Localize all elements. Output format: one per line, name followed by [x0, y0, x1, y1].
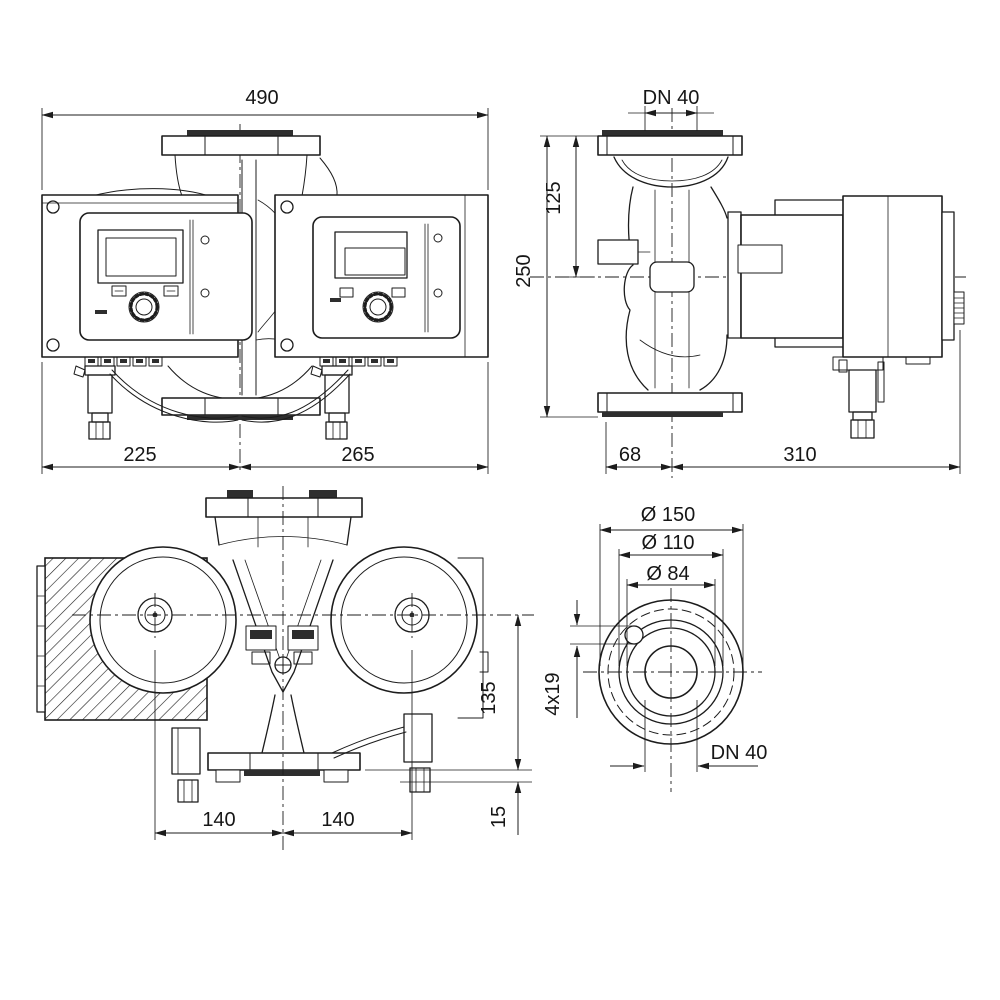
motor-window — [738, 245, 782, 273]
top-view: 140 140 135 15 — [37, 486, 534, 852]
front-bottom-flange — [162, 398, 320, 420]
dim-top-flange-foot: 15 — [488, 806, 510, 828]
flange-dimensions: Ø 150 Ø 110 Ø 84 DN 40 4x19 — [542, 504, 767, 772]
side-top-flange — [598, 130, 742, 155]
front-view: 490 225 265 — [42, 87, 488, 474]
center-fittings — [246, 626, 318, 673]
left-control-module — [80, 213, 252, 340]
motor-flange — [728, 212, 741, 338]
dim-flange-bolt-holes: 4x19 — [542, 672, 564, 715]
left-volute — [90, 547, 236, 693]
status-led — [330, 298, 341, 302]
sensor-box — [598, 240, 638, 264]
dim-front-left-width: 225 — [123, 444, 156, 466]
right-volute — [331, 547, 477, 693]
dim-top-left-pitch: 140 — [202, 809, 235, 831]
clamp-box — [650, 262, 694, 292]
technical-drawing: 490 225 265 — [0, 0, 1000, 1000]
dim-front-total-width: 490 — [245, 87, 278, 109]
top-gland-left — [172, 728, 200, 802]
bottom-flange-plan — [208, 753, 360, 782]
dim-side-axis-to-front: 68 — [619, 444, 641, 466]
pump-dimension-drawing: 490 225 265 — [0, 0, 1000, 1000]
side-view: DN 40 125 250 68 310 — [513, 87, 966, 478]
terminal-blocks — [85, 357, 397, 366]
bolt-hole — [625, 626, 643, 644]
electronics-module — [843, 196, 942, 357]
top-gland-right — [404, 714, 432, 792]
flange-detail-view: Ø 150 Ø 110 Ø 84 DN 40 4x19 — [542, 504, 767, 792]
right-control-module — [313, 217, 460, 338]
dim-side-port-to-port: 250 — [513, 254, 535, 287]
dim-front-right-width: 265 — [341, 444, 374, 466]
dim-flange-dn: DN 40 — [711, 742, 768, 764]
front-top-flange — [162, 130, 320, 155]
module-end-cap — [942, 212, 954, 340]
top-flange-plan — [206, 490, 362, 547]
dim-side-port-to-axis: 125 — [543, 181, 565, 214]
cable-gland-left — [74, 366, 115, 439]
side-pump-housing — [598, 187, 727, 390]
dim-flange-bolt-circle: Ø 110 — [642, 532, 695, 554]
dim-top-right-pitch: 140 — [321, 809, 354, 831]
status-led — [95, 310, 107, 314]
dim-side-dn: DN 40 — [643, 87, 700, 109]
side-bottom-flange — [598, 393, 742, 417]
side-cable-gland — [833, 357, 884, 438]
dim-side-axis-to-back: 310 — [783, 444, 816, 466]
stator-housing — [741, 215, 843, 338]
dim-flange-hub: Ø 84 — [646, 563, 689, 585]
side-motor — [728, 196, 964, 364]
dim-top-axis-to-flange: 135 — [478, 681, 500, 714]
dim-flange-outer: Ø 150 — [641, 504, 695, 526]
